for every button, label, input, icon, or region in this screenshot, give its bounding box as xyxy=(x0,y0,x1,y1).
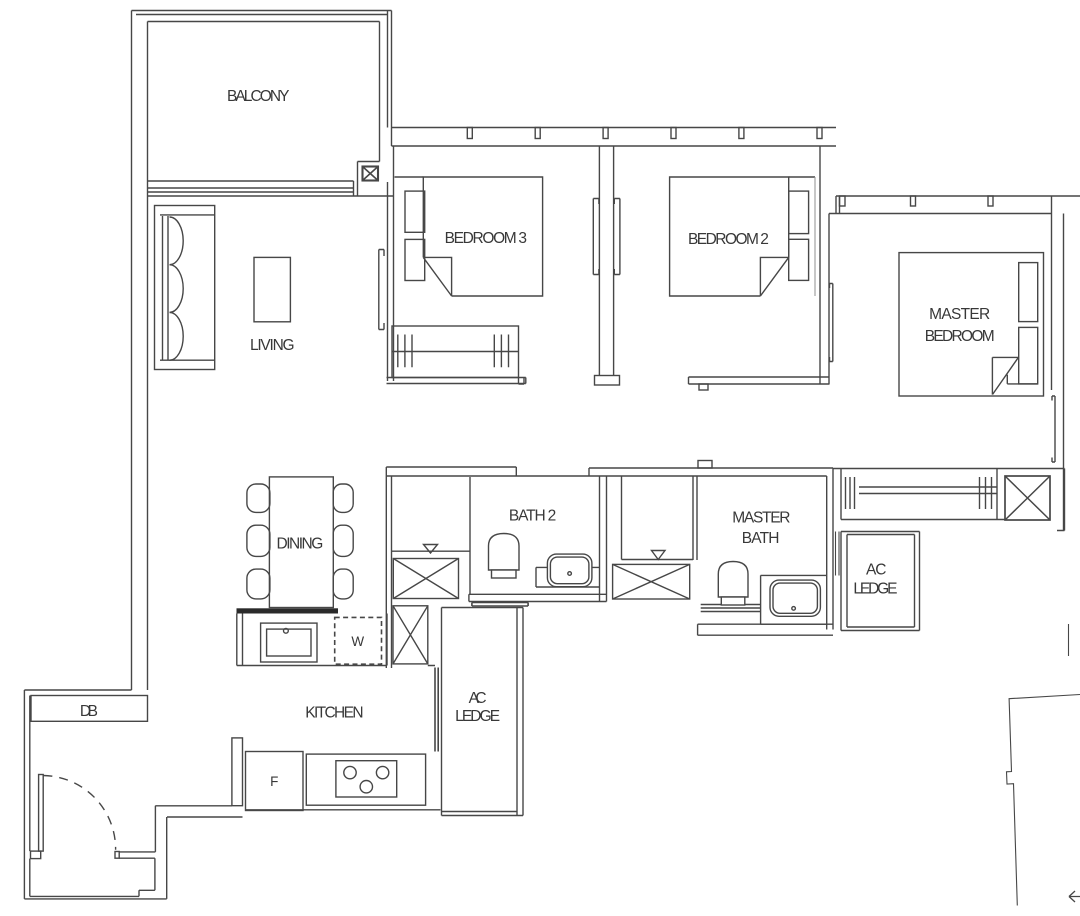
svg-text:BATH: BATH xyxy=(742,530,780,547)
svg-text:BEDROOM 3: BEDROOM 3 xyxy=(445,230,527,247)
svg-text:DB: DB xyxy=(80,703,98,720)
svg-text:AC: AC xyxy=(866,562,887,579)
svg-text:AC: AC xyxy=(469,690,487,707)
svg-text:LEDGE: LEDGE xyxy=(853,581,897,598)
svg-text:MASTER: MASTER xyxy=(732,509,790,526)
svg-text:LEDGE: LEDGE xyxy=(455,708,500,725)
svg-text:LIVING: LIVING xyxy=(250,337,295,354)
svg-text:BEDROOM: BEDROOM xyxy=(925,328,995,345)
svg-text:MASTER: MASTER xyxy=(929,306,990,323)
svg-text:BEDROOM 2: BEDROOM 2 xyxy=(688,231,769,248)
svg-text:DINING: DINING xyxy=(277,536,324,553)
svg-text:BALCONY: BALCONY xyxy=(227,88,290,105)
svg-text:F: F xyxy=(270,774,278,789)
svg-text:BATH 2: BATH 2 xyxy=(509,508,556,525)
svg-text:W: W xyxy=(351,634,364,649)
svg-text:KITCHEN: KITCHEN xyxy=(305,705,363,722)
